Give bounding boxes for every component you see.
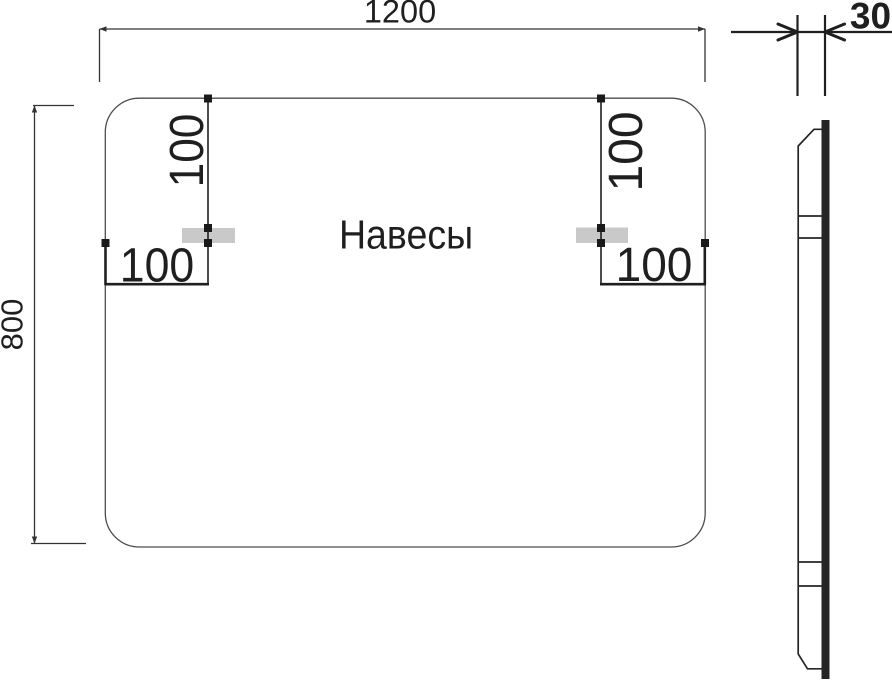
svg-text:100: 100	[120, 238, 194, 292]
svg-text:1200: 1200	[364, 0, 436, 30]
svg-text:100: 100	[600, 111, 653, 191]
svg-text:100: 100	[616, 237, 693, 291]
svg-text:100: 100	[159, 114, 213, 188]
svg-text:Навесы: Навесы	[339, 212, 473, 258]
svg-text:800: 800	[0, 299, 30, 351]
svg-text:30: 30	[850, 0, 891, 37]
